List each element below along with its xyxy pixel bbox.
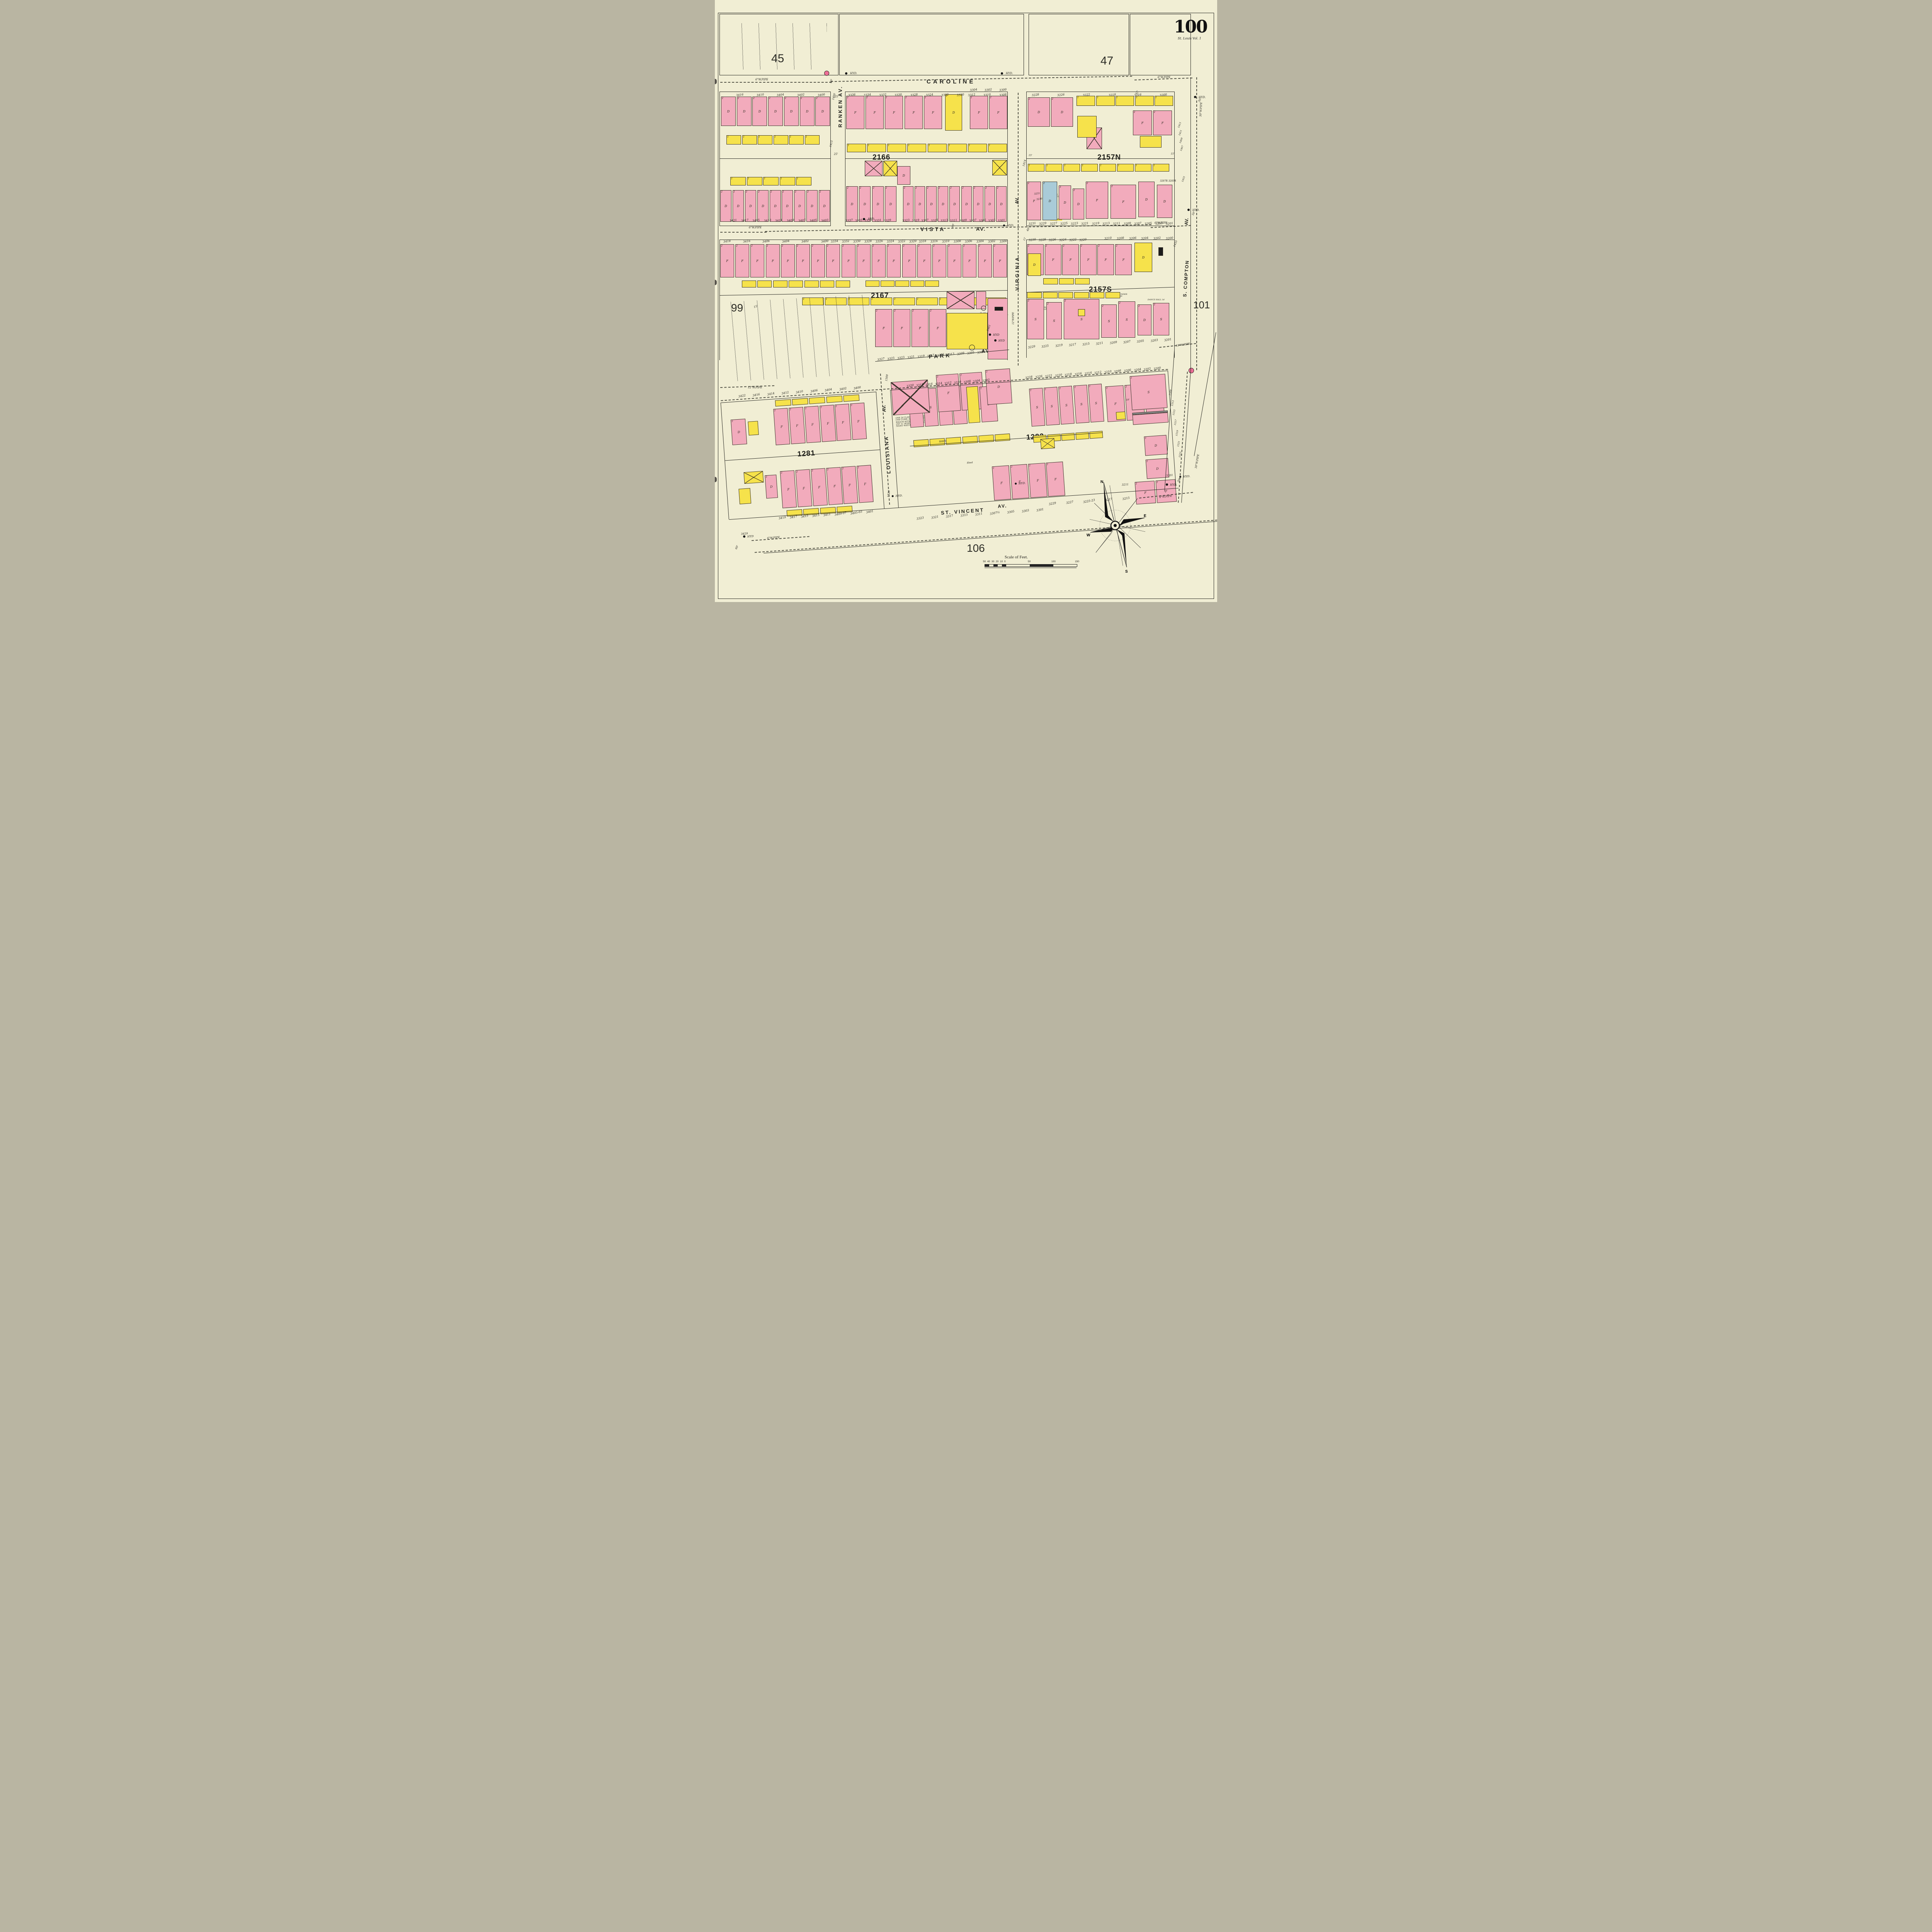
map-label: 6"W.PIPE <box>755 78 768 81</box>
binder-nick <box>715 477 717 482</box>
building <box>865 161 883 176</box>
house-number: 3301 <box>1036 507 1044 512</box>
house-number: 3302 <box>984 88 992 92</box>
building <box>843 395 859 402</box>
building: 1 <box>1153 164 1169 172</box>
house-number: 3336 <box>848 93 856 97</box>
hydrant-dot <box>891 495 893 497</box>
scale-tick: 40 <box>987 560 990 563</box>
street-virginia-av: AV. <box>1015 197 1020 204</box>
house-number: 3317 <box>946 514 953 519</box>
building: D2 <box>949 186 960 222</box>
building: S2 <box>1088 384 1104 422</box>
house-number: 3307½ <box>990 510 1000 516</box>
map-label: HYD. <box>1199 96 1206 99</box>
building: F2 <box>1133 111 1152 135</box>
map-label: 1407 <box>1180 145 1184 152</box>
building: F2 <box>932 244 946 277</box>
building: F2 <box>804 406 821 443</box>
building: F2 <box>1080 244 1097 275</box>
building: D <box>1134 243 1152 272</box>
water-pipe-line <box>720 82 832 83</box>
hydrant-dot <box>989 333 991 336</box>
building <box>913 439 929 447</box>
building: 1 <box>1099 164 1116 172</box>
building: F2 <box>885 96 903 129</box>
building: F2 <box>796 244 810 277</box>
building: D2 <box>731 419 747 445</box>
house-number: 3301 <box>997 218 1005 223</box>
map-label: 6"W.PIPE <box>749 226 762 229</box>
house-number: 3400 <box>817 93 825 97</box>
building <box>748 421 759 435</box>
map-label: 25' <box>834 153 838 156</box>
building <box>1040 438 1055 449</box>
map-label: 1415 <box>829 140 834 148</box>
building: F2 <box>929 309 946 347</box>
street-st-vincent-av: AV. <box>998 503 1007 509</box>
house-number: 3312 <box>968 93 976 97</box>
map-label: 1500 <box>885 374 889 381</box>
house-number: 3334 <box>864 93 871 97</box>
house-number: 3324 <box>925 93 933 97</box>
building: D2 <box>752 97 767 126</box>
house-number: 3322 <box>898 239 905 243</box>
house-number: 3302 <box>988 239 996 243</box>
building: F2 <box>912 309 929 347</box>
building: F2 <box>811 468 828 506</box>
house-number: 3305 <box>1007 509 1015 514</box>
building <box>995 307 1003 311</box>
building: D2 <box>721 97 736 126</box>
building: 1 <box>1028 164 1044 172</box>
scale-underline <box>985 568 1077 568</box>
house-number: 3332 <box>842 239 850 243</box>
map-line <box>721 403 729 519</box>
house-number: 3208 <box>1116 236 1124 240</box>
building <box>995 434 1010 442</box>
building <box>1090 292 1104 298</box>
building: F2 <box>893 309 910 347</box>
building <box>1075 432 1089 440</box>
building <box>925 281 939 287</box>
building: D2 <box>885 186 896 222</box>
house-number-row: 342134173415341334113409340734053403 <box>730 219 828 222</box>
building: 1 <box>774 135 788 145</box>
house-number: 3404 <box>825 388 832 392</box>
house-number: 3412 <box>781 390 789 395</box>
building: D2 <box>938 186 948 222</box>
building <box>1027 292 1042 298</box>
building: F2 <box>1111 185 1136 219</box>
house-number: 3309 <box>959 218 967 223</box>
map-label: SHED <box>939 440 946 443</box>
building <box>866 281 879 287</box>
building: 1 <box>796 177 811 185</box>
scale-segments <box>985 564 1077 567</box>
house-number: 3406 <box>810 388 818 393</box>
building: D <box>1028 253 1041 276</box>
house-number: 3410 <box>756 93 764 97</box>
house-number: 3402 <box>797 93 805 97</box>
building: F2 <box>1045 244 1061 275</box>
building: D2 <box>996 186 1007 222</box>
building <box>978 435 994 443</box>
binder-nick <box>715 280 717 285</box>
building: 1 <box>1063 164 1080 172</box>
block-number-101: 101 <box>1193 300 1210 310</box>
map-label: HYD <box>993 334 999 337</box>
building: F2 <box>970 96 988 129</box>
building: S2 <box>1029 388 1045 427</box>
house-number: 3417 <box>741 218 748 223</box>
house-number: 3421 <box>730 218 737 223</box>
vacant-lot-lines <box>721 294 874 382</box>
sanborn-map-sheet: 100 St. Louis Vol. 1 45 47 99 101 106 21… <box>715 0 1217 602</box>
building: F2 <box>720 244 734 277</box>
house-number: 3303 <box>988 218 996 223</box>
building <box>1078 309 1085 316</box>
house-number: 3204 <box>1141 236 1149 240</box>
house-number: 3200 <box>1159 93 1167 97</box>
building <box>1089 431 1103 439</box>
house-number: 3315 <box>960 513 968 517</box>
house-number: 3330 <box>895 93 902 97</box>
building: 1 <box>1077 96 1095 106</box>
building: 1 <box>742 135 757 145</box>
street-ranken: RANKEN AV. <box>838 86 843 128</box>
house-number: 3210 <box>1104 236 1112 240</box>
building: S2 <box>1130 374 1168 410</box>
building: F2 <box>963 244 976 277</box>
building <box>742 281 756 287</box>
building <box>910 281 924 287</box>
building <box>826 396 842 403</box>
building: F2 <box>992 465 1011 500</box>
house-number-row: 330433023300 <box>970 88 1007 92</box>
building: S2 <box>1073 385 1090 423</box>
house-number-row: 321032083206320432023200 <box>1104 236 1173 240</box>
building: D2 <box>1051 97 1073 127</box>
hydrant-dot <box>1001 72 1003 75</box>
note-dance-hall: DANCE HALL 3d <box>1148 299 1165 301</box>
house-number: 3328 <box>910 93 918 97</box>
map-label: 1521 <box>1177 441 1181 447</box>
building: D2 <box>973 186 983 222</box>
house-number: 3334 <box>831 239 838 243</box>
building: 1 <box>780 177 795 185</box>
building: F2 <box>978 244 992 277</box>
house-number: 3405 <box>810 218 817 223</box>
building: D2 <box>819 190 830 222</box>
building: 1 <box>763 177 779 185</box>
building: D2 <box>903 186 913 222</box>
house-number-row: 341834163406340434023400 <box>723 240 828 243</box>
building: D2 <box>737 97 752 126</box>
map-label: 1513 <box>1171 400 1175 406</box>
building <box>820 281 834 287</box>
svg-text:S: S <box>1125 570 1128 574</box>
map-line <box>1174 92 1175 350</box>
house-number: 3323 <box>902 218 910 223</box>
vacant-lot-lines <box>726 23 827 70</box>
house-number: 3332 <box>879 93 887 97</box>
map-label: HYD. <box>896 495 903 498</box>
scale-tick: 50 <box>983 560 986 563</box>
building: F2 <box>841 466 858 504</box>
building: D2 <box>985 368 1012 405</box>
house-number: 3224 <box>1059 238 1066 242</box>
building <box>1158 247 1163 256</box>
scale-tick: 10 <box>1000 560 1003 563</box>
building: 1 <box>907 144 926 152</box>
house-number-row: 33363334333233303328332433223320 <box>848 93 964 97</box>
building <box>773 281 787 287</box>
building <box>757 281 772 287</box>
building: 1 <box>916 298 938 305</box>
building: F2 <box>1115 244 1132 275</box>
building: 1 <box>805 135 820 145</box>
house-number: 3230 <box>1029 238 1036 242</box>
house-number: 3416 <box>736 93 744 97</box>
house-number: 3418 <box>723 239 731 243</box>
house-number: 3329 <box>883 218 891 223</box>
building <box>1105 292 1120 298</box>
building: S2 <box>1064 299 1099 339</box>
map-label: 6"W.PIPE <box>1155 222 1167 224</box>
building: D2 <box>782 190 793 222</box>
building: 1 <box>730 177 746 185</box>
building: F2 <box>766 244 780 277</box>
house-number: 3220 <box>1079 238 1087 242</box>
house-number: 3414 <box>767 391 775 396</box>
house-number: 3304 <box>970 88 978 92</box>
house-number: 3331 <box>874 218 882 223</box>
svg-text:N: N <box>1100 480 1103 484</box>
building <box>775 399 791 406</box>
building: D1 <box>945 94 962 131</box>
building: F2 <box>1156 479 1177 503</box>
building <box>789 281 803 287</box>
house-number: 3200 <box>1165 236 1173 240</box>
map-label: 3201 <box>1166 474 1173 478</box>
building: 1 <box>948 144 967 152</box>
house-number: 3313 <box>940 218 948 223</box>
building: F2 <box>781 244 795 277</box>
street-virginia: VIRGINIA <box>1015 256 1020 291</box>
map-label: 3207R 3205R <box>1160 180 1176 182</box>
map-label: 10' <box>1126 399 1130 401</box>
map-line <box>719 158 831 159</box>
building: D2 <box>745 190 756 222</box>
building: D3 <box>1059 185 1071 219</box>
building: D <box>897 166 910 185</box>
house-number: 3330 <box>853 239 861 243</box>
house-number-row: 331233103308 <box>968 93 1007 97</box>
scale-title: Scale of Feet. <box>1005 555 1028 560</box>
house-number: 3318 <box>919 239 927 243</box>
house-number: 3307 <box>969 218 976 223</box>
house-number: 3328 <box>864 239 872 243</box>
building: D2 <box>1028 97 1050 127</box>
map-label: HYD. <box>1006 72 1013 75</box>
building: F2 <box>789 407 805 444</box>
building <box>947 291 975 309</box>
svg-text:W: W <box>1087 533 1090 537</box>
building: D2 <box>859 186 871 222</box>
building: F2 <box>1153 111 1172 135</box>
hydrant-dot <box>863 218 865 220</box>
house-number-row: 33343332333033283326332433223320 <box>831 240 917 243</box>
building: F2 <box>1062 244 1079 275</box>
building: F2 <box>842 244 855 277</box>
open-circle-marker <box>981 306 986 311</box>
map-label: HYD <box>998 340 1005 342</box>
map-label: 12"W.PIPE <box>1012 312 1015 325</box>
map-label: 1515 <box>1173 409 1176 415</box>
building <box>1133 412 1169 425</box>
house-number: 3337 <box>845 218 853 223</box>
house-number: 3321 <box>931 515 939 519</box>
building: D2 <box>720 190 731 222</box>
building: D2 <box>800 97 815 126</box>
building: D2 <box>733 190 744 222</box>
house-number: 3315 <box>931 218 939 223</box>
building: 1 <box>928 144 947 152</box>
frame-top <box>718 13 1214 13</box>
house-number-row: 3231322932273225322332213219321332113209… <box>1029 222 1173 225</box>
scale-tick: 150 <box>1075 560 1079 563</box>
scale-tick: 20 <box>996 560 998 563</box>
building: 1 <box>789 135 804 145</box>
map-label: 1411 <box>1179 130 1183 136</box>
house-number: 3320 <box>909 239 917 243</box>
building: F2 <box>875 309 892 347</box>
water-pipe-line <box>720 232 767 233</box>
scale-tick: 100 <box>1051 560 1056 563</box>
building: S2 <box>1044 387 1060 425</box>
house-number: 3406 <box>762 239 770 243</box>
map-label: 1413 <box>1178 122 1182 129</box>
map-label: HYD. <box>1170 484 1177 486</box>
building <box>895 281 909 287</box>
map-label: 1519 <box>1176 430 1179 436</box>
map-label: 1433 <box>1182 176 1186 183</box>
house-number: 3229 <box>1048 501 1056 506</box>
building: D <box>1138 182 1155 217</box>
block-outline-top-mid <box>839 14 1024 75</box>
house-number: 3422 <box>738 393 746 398</box>
building: D2 <box>815 97 830 126</box>
building: F2 <box>872 244 886 277</box>
house-number: 3222 <box>1083 93 1090 97</box>
house-number: 3415 <box>752 218 760 223</box>
building <box>947 313 988 349</box>
street-compton-av: AV. <box>1184 218 1189 225</box>
building: 1 <box>871 298 892 305</box>
house-number: 3206 <box>1129 236 1136 240</box>
house-number: 3416 <box>743 239 750 243</box>
house-number: 3229 <box>1039 221 1047 226</box>
house-number: 3402 <box>801 239 809 243</box>
hydrant-dot <box>994 339 997 342</box>
building: S2 <box>1101 304 1117 338</box>
building: 1 <box>1116 96 1134 106</box>
building: D2 <box>1073 189 1084 219</box>
building: F2 <box>866 96 884 129</box>
building <box>1074 292 1089 298</box>
house-number: 3202 <box>1153 236 1161 240</box>
building: 1 <box>847 144 866 152</box>
map-label: 30"W.PIPE <box>1199 102 1203 117</box>
building <box>1116 412 1126 420</box>
building: F2 <box>917 244 931 277</box>
map-line <box>1026 158 1175 159</box>
building: 1 <box>1096 96 1115 106</box>
block-outline-47a <box>1029 14 1129 75</box>
hydrant-dot <box>1166 483 1168 486</box>
house-number: 3308 <box>999 93 1007 97</box>
map-label: 40' <box>1026 227 1031 232</box>
building: 1 <box>726 135 741 145</box>
building: D2 <box>770 190 781 222</box>
map-label: HYD. <box>1019 482 1026 485</box>
water-pipe-line <box>1196 77 1197 370</box>
building: F2 <box>835 404 851 441</box>
house-number: 3305 <box>978 218 986 223</box>
hydrant-dot <box>1189 368 1194 373</box>
water-pipe-line <box>831 76 1132 82</box>
building <box>738 488 751 504</box>
house-number: 3228 <box>1039 238 1046 242</box>
building: D2 <box>768 97 783 126</box>
house-number: 3227 <box>1066 500 1073 505</box>
building <box>1043 278 1058 284</box>
building: 1 <box>758 135 772 145</box>
house-number: 3416 <box>752 393 760 397</box>
house-number: 3404 <box>782 239 789 243</box>
building: S2 <box>1027 299 1044 339</box>
building: D2 <box>757 190 769 222</box>
building: F2 <box>780 470 797 508</box>
building <box>883 161 897 176</box>
building: D2 <box>1138 304 1151 335</box>
building: F2 <box>1027 182 1041 220</box>
hydrant-dot <box>743 535 745 537</box>
building: F2 <box>850 403 867 440</box>
building: F2 <box>905 96 923 129</box>
map-label: 1517 <box>1174 419 1178 425</box>
building <box>1061 433 1075 440</box>
building: F2 <box>750 244 764 277</box>
building: 1 <box>1046 164 1062 172</box>
building: D2 <box>961 186 972 222</box>
building: S2 <box>1058 386 1075 424</box>
building: D2 <box>784 97 799 126</box>
open-circle-marker <box>969 345 975 350</box>
binder-nick <box>715 79 717 84</box>
building: 1 <box>988 144 1007 152</box>
building: F2 <box>936 374 961 412</box>
building: F2 <box>857 244 871 277</box>
map-label: HYD <box>747 535 754 538</box>
house-number: 3409 <box>787 218 794 223</box>
building: D2 <box>846 186 858 222</box>
house-number: 3320 <box>956 93 964 97</box>
house-number: 3308 <box>953 239 961 243</box>
building <box>962 436 978 444</box>
house-number: 3402 <box>839 386 847 391</box>
